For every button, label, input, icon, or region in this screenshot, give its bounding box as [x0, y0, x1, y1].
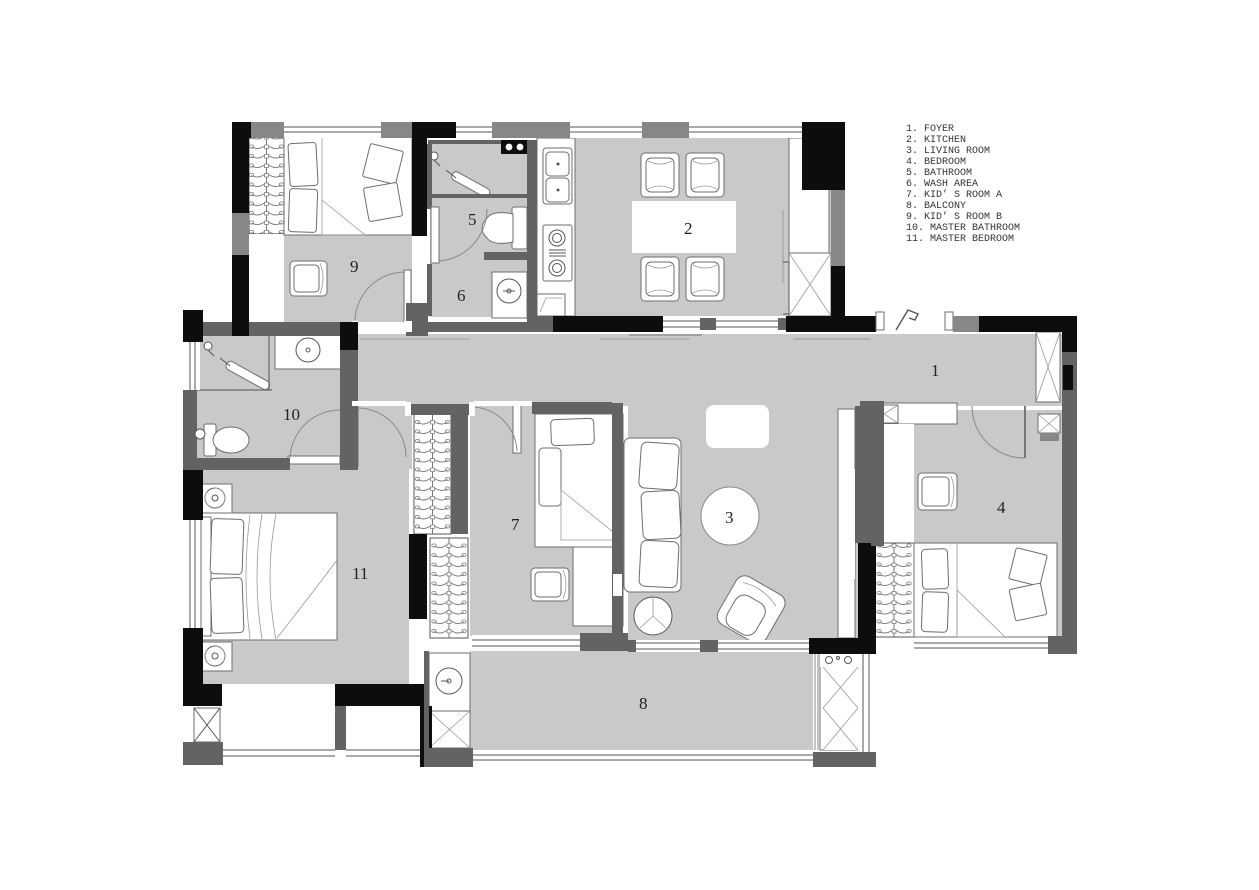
svg-text:10. MASTER BATHROOM: 10. MASTER BATHROOM — [906, 223, 1020, 234]
svg-text:4. BEDROOM: 4. BEDROOM — [906, 157, 966, 168]
svg-text:2: 2 — [684, 219, 693, 238]
svg-text:1: 1 — [931, 361, 940, 380]
svg-text:8. BALCONY: 8. BALCONY — [906, 201, 966, 212]
svg-text:5. BATHROOM: 5. BATHROOM — [906, 168, 972, 179]
svg-text:7: 7 — [511, 515, 520, 534]
svg-text:9. KID’ S ROOM B: 9. KID’ S ROOM B — [906, 211, 1002, 223]
svg-text:3: 3 — [725, 508, 734, 527]
svg-text:2. KITCHEN: 2. KITCHEN — [906, 135, 966, 146]
svg-text:6. WASH AREA: 6. WASH AREA — [906, 179, 978, 190]
svg-text:11. MASTER BEDROOM: 11. MASTER BEDROOM — [906, 234, 1014, 245]
svg-text:1. FOYER: 1. FOYER — [906, 124, 954, 135]
svg-text:5: 5 — [468, 210, 477, 229]
svg-text:4: 4 — [997, 498, 1006, 517]
svg-text:7. KID’ S ROOM A: 7. KID’ S ROOM A — [906, 189, 1002, 201]
svg-text:8: 8 — [639, 694, 648, 713]
svg-text:9: 9 — [350, 257, 359, 276]
svg-text:3. LIVING ROOM: 3. LIVING ROOM — [906, 146, 990, 157]
svg-text:6: 6 — [457, 286, 466, 305]
svg-text:11: 11 — [352, 564, 368, 583]
svg-text:10: 10 — [283, 405, 300, 424]
